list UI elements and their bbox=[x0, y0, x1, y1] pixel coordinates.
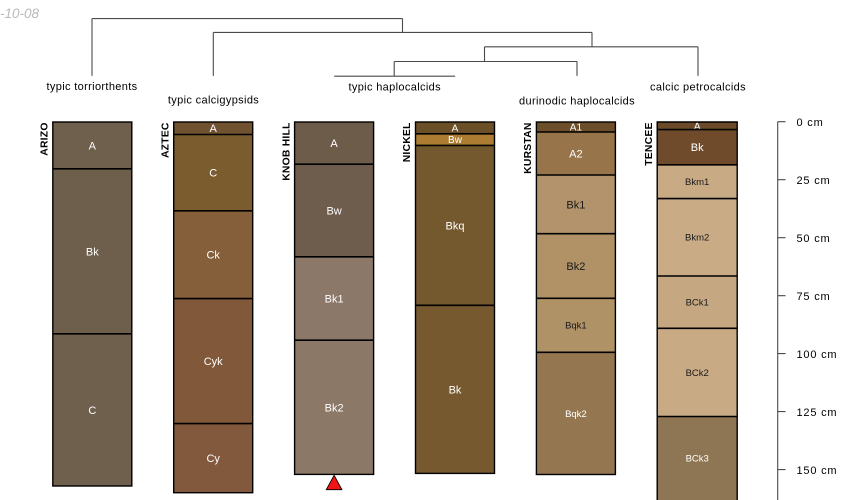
svg-text:typic torriorthents: typic torriorthents bbox=[46, 81, 137, 93]
svg-text:TENCEE: TENCEE bbox=[644, 122, 655, 165]
svg-text:BCk1: BCk1 bbox=[686, 298, 709, 309]
svg-text:durinodic haplocalcids: durinodic haplocalcids bbox=[519, 95, 635, 107]
svg-text:Bkq: Bkq bbox=[446, 220, 465, 232]
svg-text:C: C bbox=[88, 405, 96, 417]
svg-text:BCk2: BCk2 bbox=[686, 368, 709, 379]
svg-text:Bk2: Bk2 bbox=[325, 402, 344, 414]
svg-text:2011-10-08: 2011-10-08 bbox=[0, 6, 39, 21]
svg-text:25 cm: 25 cm bbox=[797, 175, 831, 187]
svg-text:100 cm: 100 cm bbox=[797, 349, 838, 361]
svg-text:C: C bbox=[209, 168, 217, 180]
svg-text:Bk1: Bk1 bbox=[325, 294, 344, 306]
svg-text:typic haplocalcids: typic haplocalcids bbox=[348, 81, 441, 93]
svg-text:A: A bbox=[330, 138, 338, 150]
svg-text:A: A bbox=[210, 123, 218, 135]
svg-text:KURSTAN: KURSTAN bbox=[523, 122, 534, 173]
svg-text:Bk: Bk bbox=[449, 384, 462, 396]
svg-text:Bqk1: Bqk1 bbox=[565, 321, 587, 332]
svg-text:50 cm: 50 cm bbox=[797, 233, 831, 245]
svg-text:Cy: Cy bbox=[206, 453, 220, 465]
svg-text:Bw: Bw bbox=[326, 206, 341, 218]
svg-text:Bk2: Bk2 bbox=[566, 261, 585, 273]
svg-text:Bk: Bk bbox=[86, 246, 99, 258]
svg-text:150 cm: 150 cm bbox=[797, 465, 838, 477]
svg-text:A2: A2 bbox=[569, 149, 582, 161]
svg-text:Bk: Bk bbox=[691, 142, 704, 154]
svg-text:A: A bbox=[89, 140, 97, 152]
svg-text:125 cm: 125 cm bbox=[797, 407, 838, 419]
svg-text:BCk3: BCk3 bbox=[686, 454, 709, 465]
svg-text:75 cm: 75 cm bbox=[797, 291, 831, 303]
svg-text:Bw: Bw bbox=[448, 135, 463, 146]
svg-text:NICKEL: NICKEL bbox=[402, 122, 413, 162]
svg-text:Bqk2: Bqk2 bbox=[565, 409, 587, 420]
svg-text:typic calcigypsids: typic calcigypsids bbox=[168, 94, 259, 106]
svg-text:KNOB HILL: KNOB HILL bbox=[281, 122, 292, 181]
svg-text:0 cm: 0 cm bbox=[797, 117, 824, 129]
svg-text:Cyk: Cyk bbox=[204, 356, 223, 368]
svg-text:Bk1: Bk1 bbox=[566, 199, 585, 211]
svg-text:AZTEC: AZTEC bbox=[160, 122, 171, 158]
svg-text:A: A bbox=[452, 124, 459, 135]
svg-text:Bkm1: Bkm1 bbox=[685, 177, 709, 188]
svg-text:calcic petrocalcids: calcic petrocalcids bbox=[650, 82, 746, 94]
svg-text:Bkm2: Bkm2 bbox=[685, 233, 709, 244]
svg-text:Ck: Ck bbox=[206, 250, 220, 262]
svg-text:ARIZO: ARIZO bbox=[40, 122, 51, 155]
